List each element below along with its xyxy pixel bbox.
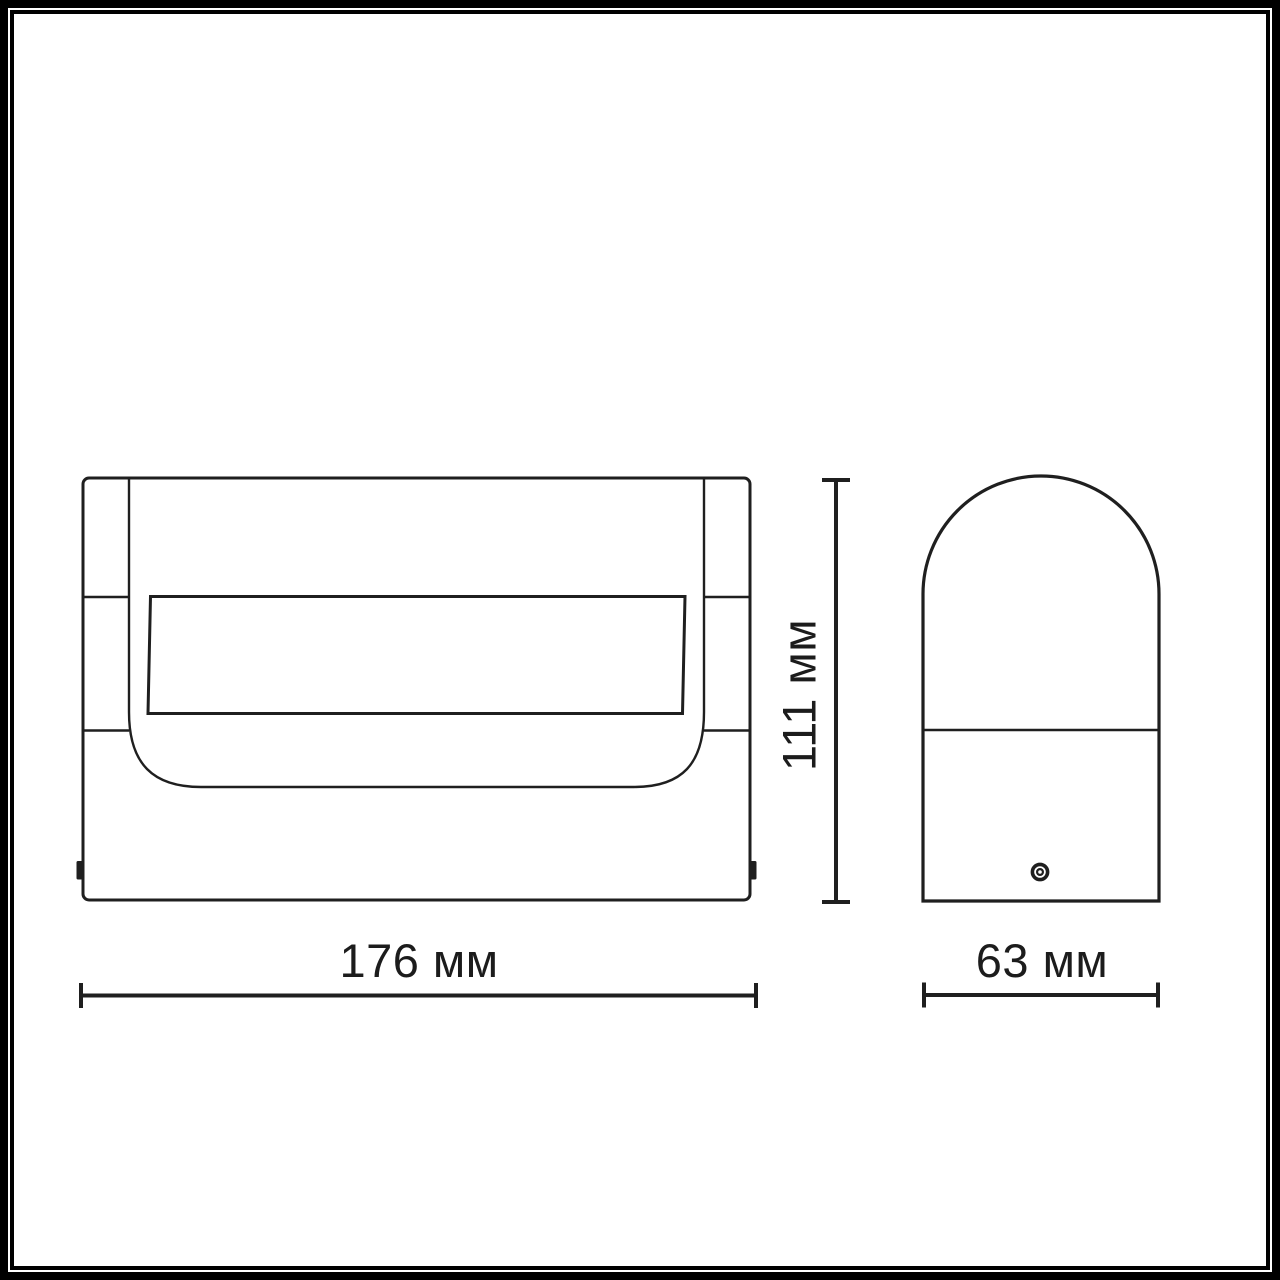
front-view-diffuser-outline — [129, 479, 704, 787]
width-dimension-label: 176 мм — [339, 937, 498, 984]
front-view-mount-notch-right — [750, 861, 757, 880]
depth-dimension-label: 63 мм — [976, 937, 1108, 984]
screw-outer-ring — [1032, 864, 1047, 879]
screw-icon — [1032, 864, 1047, 879]
front-view-panel-dividers — [84, 597, 749, 731]
height-dimension-label: 111 мм — [776, 619, 823, 771]
lamp-dimension-drawing — [0, 0, 1280, 1280]
front-view-light-window — [148, 597, 685, 714]
height-dimension-line — [824, 480, 848, 902]
screw-inner-dot — [1037, 869, 1043, 875]
front-view-outline — [83, 478, 750, 900]
side-view-outline — [923, 476, 1159, 901]
front-view-mount-notch-left — [77, 861, 84, 880]
technical-drawing-page: 176 мм 111 мм 63 мм — [0, 0, 1280, 1280]
width-dimension-line — [81, 985, 756, 1006]
depth-dimension-line — [924, 985, 1158, 1006]
